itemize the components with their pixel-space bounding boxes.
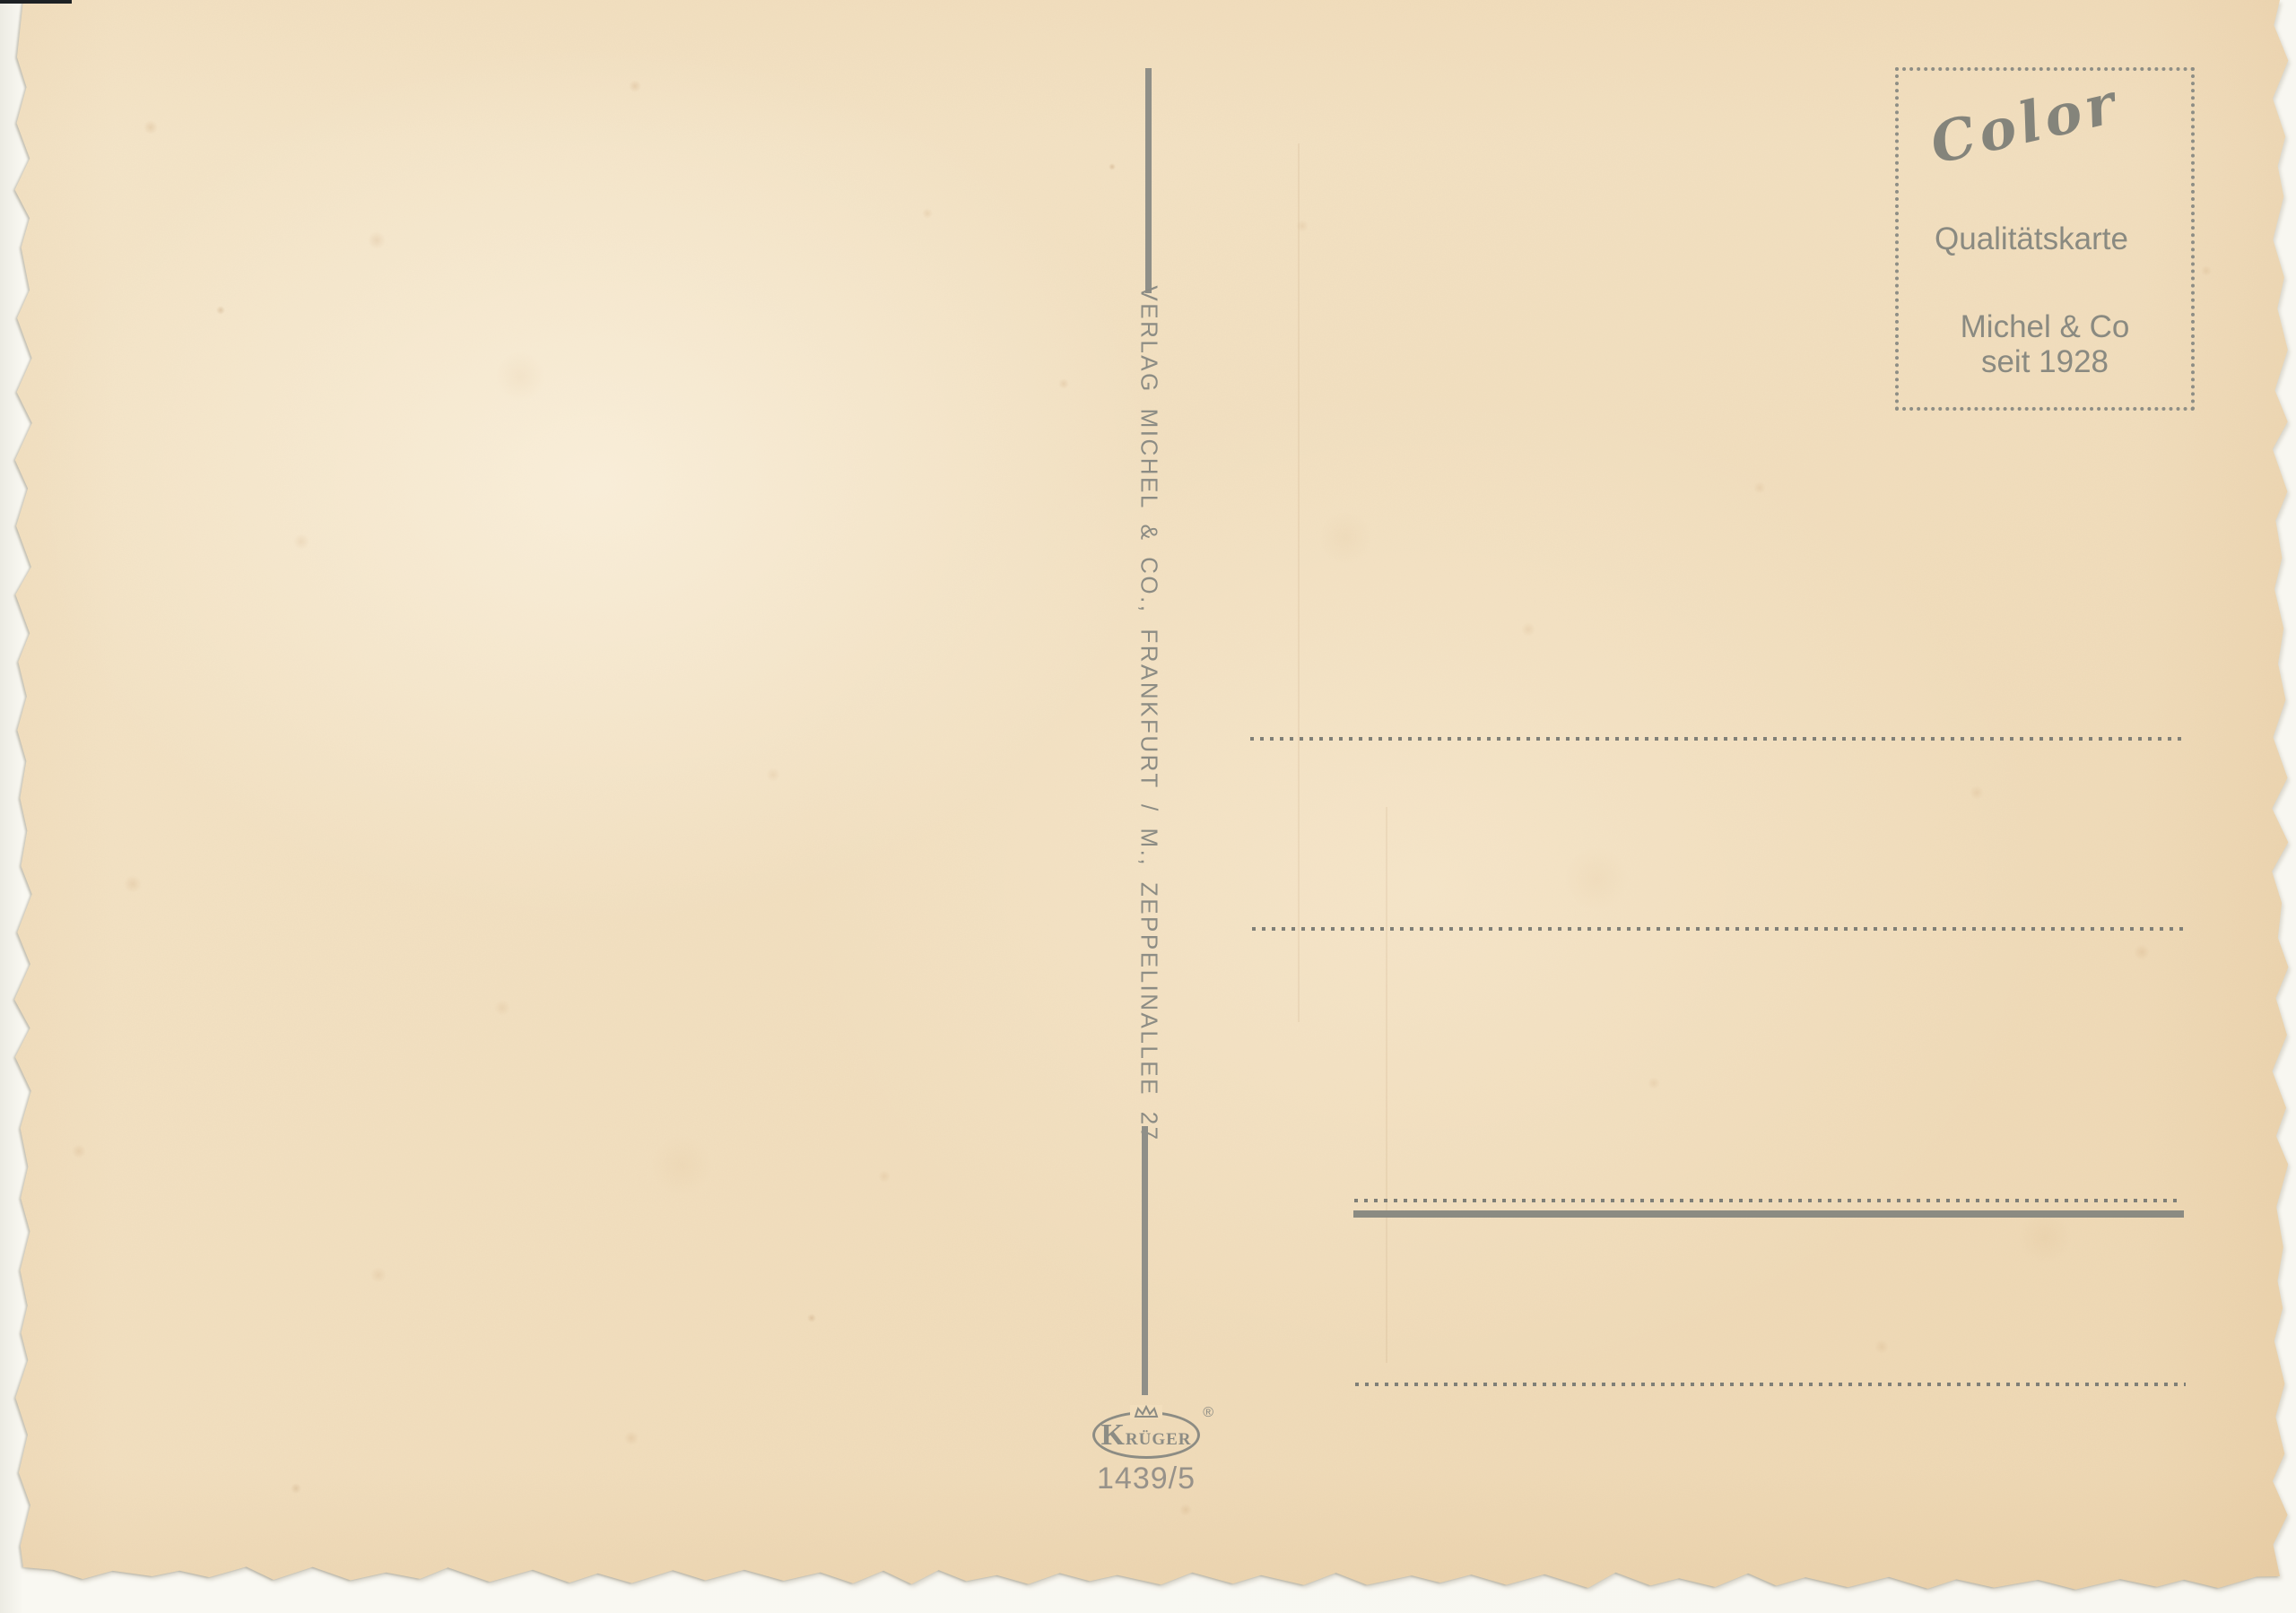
- registered-trademark-icon: ®: [1203, 1405, 1213, 1421]
- address-line-1: [1250, 737, 2185, 741]
- address-line-emphasis: [1353, 1210, 2184, 1218]
- stamp-box: Color Qualitätskarte Michel & Co seit 19…: [1895, 67, 2195, 411]
- since-label: seit 1928: [1899, 344, 2191, 380]
- postcard-back: VERLAG MICHEL & CO., FRANKFURT / M., ZEP…: [0, 0, 2296, 1613]
- krueger-logo-name: Krüger: [1095, 1414, 1197, 1458]
- divider-line-bottom: [1142, 1126, 1148, 1395]
- quality-label: Qualitätskarte: [1935, 221, 2128, 257]
- maker-label: Michel & Co: [1899, 309, 2191, 345]
- publisher-imprint: VERLAG MICHEL & CO., FRANKFURT / M., ZEP…: [1135, 285, 1163, 1141]
- scan-edge-artifact: [0, 0, 72, 4]
- address-line-2: [1252, 927, 2183, 931]
- divider-line-top: [1145, 68, 1152, 293]
- krueger-logo: Krüger ®: [1092, 1411, 1200, 1459]
- paper-crease: [1386, 807, 1387, 1363]
- address-line-3: [1354, 1199, 2181, 1202]
- scanner-background: VERLAG MICHEL & CO., FRANKFURT / M., ZEP…: [0, 0, 2296, 1613]
- address-line-4: [1355, 1383, 2186, 1386]
- brand-script: Color: [1925, 70, 2126, 177]
- paper-crease: [1298, 143, 1300, 1022]
- crown-icon: [1130, 1405, 1162, 1418]
- card-number: 1439/5: [1057, 1461, 1236, 1496]
